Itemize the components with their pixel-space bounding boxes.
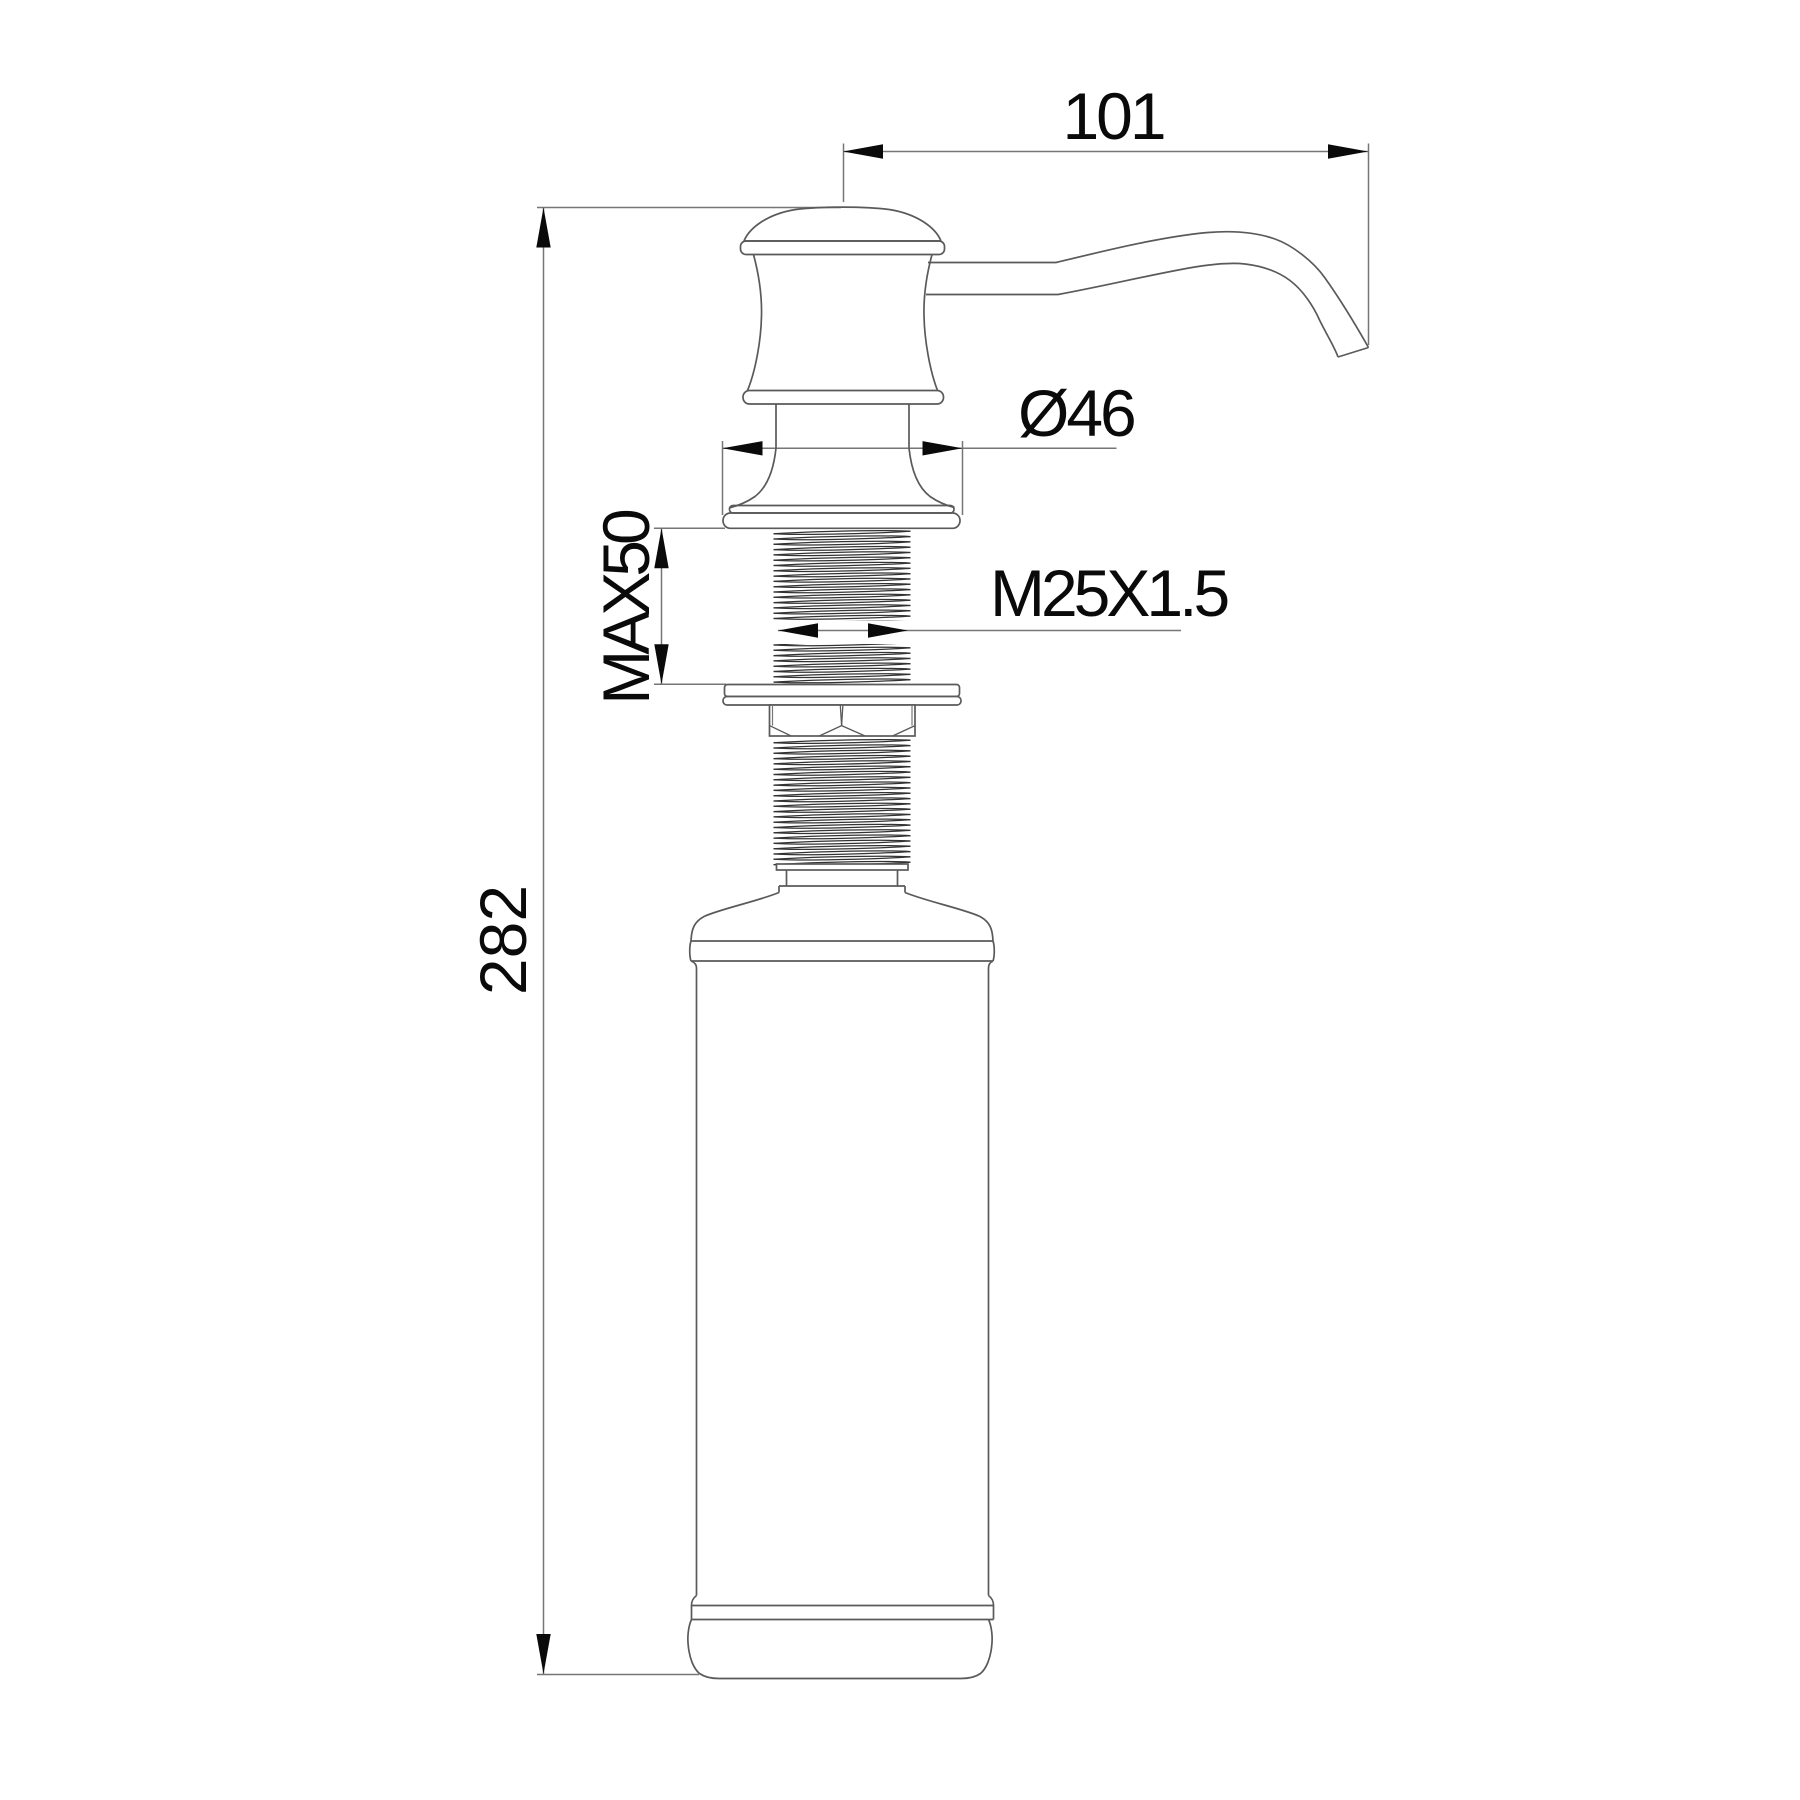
svg-text:282: 282 — [466, 885, 540, 995]
svg-text:MAX50: MAX50 — [589, 510, 663, 705]
svg-text:101: 101 — [1062, 79, 1163, 153]
svg-text:Ø46: Ø46 — [1018, 376, 1134, 450]
svg-text:M25X1.5: M25X1.5 — [990, 556, 1227, 630]
